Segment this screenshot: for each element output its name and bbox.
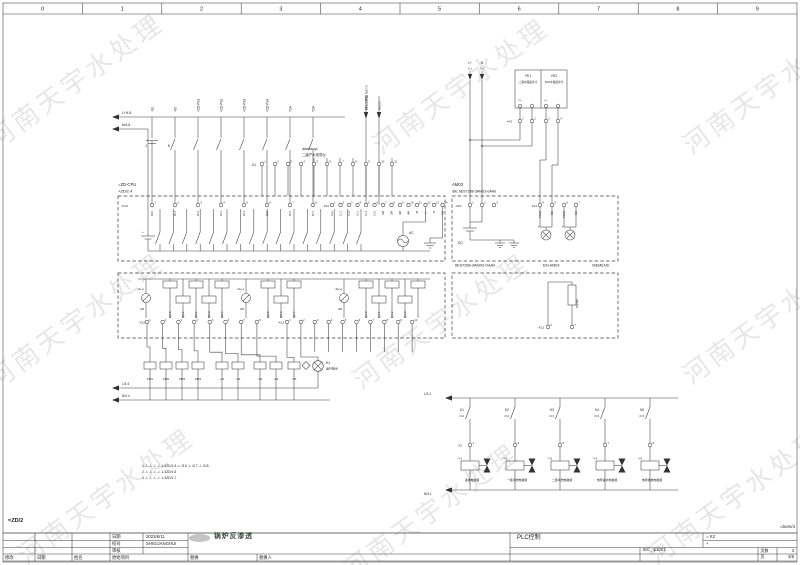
sheet-ref: /3.3 xyxy=(639,414,644,418)
dc-label: DC xyxy=(458,241,463,245)
terminal-number: 4 xyxy=(542,201,544,205)
output-signal: Q1.2 xyxy=(390,311,394,318)
terminal-number: 7 xyxy=(574,323,576,327)
module-tag: AM03 xyxy=(452,182,464,187)
terminal-strip-label: -X12 xyxy=(538,326,545,330)
terminal-number: 11 xyxy=(419,201,422,205)
terminal-number: 5 xyxy=(345,318,347,322)
terminal-number: 2 xyxy=(277,160,279,164)
output-signal: Q0.4 xyxy=(220,311,224,318)
device-label: K xyxy=(168,144,171,148)
output-signal: Q0.3 xyxy=(207,311,211,318)
tb-page-label: 页 xyxy=(761,555,765,559)
terminal-number: 8 xyxy=(315,201,317,205)
tb-modify-label: 修改 xyxy=(5,556,14,560)
device-label: <ZD-PS1 xyxy=(196,99,200,112)
terminal-number: 3 xyxy=(290,160,292,164)
terminal-number: 1 xyxy=(522,117,524,121)
feed-label: 3L(+) xyxy=(335,287,342,291)
terminal-number: 9 xyxy=(400,318,402,322)
terminal-number: 10 xyxy=(411,201,414,205)
device-label: <ZD-PS2 xyxy=(219,99,223,112)
supply-tag: M xyxy=(481,61,484,65)
device-label: -K0 xyxy=(173,107,177,112)
module-caption: EM AM03 xyxy=(543,264,559,268)
cpu-tag: =ZD-CPU xyxy=(118,182,136,187)
io-signal: I0.3 xyxy=(219,211,223,216)
terminal-number: 1 xyxy=(334,201,336,205)
terminal-number: 6 xyxy=(228,318,230,322)
doc-ref-left: =ZD/2 xyxy=(8,519,23,525)
io-signal: I0.4 xyxy=(242,211,246,216)
sheet-ref: /3.2 xyxy=(504,414,509,418)
io-signal: I0.7 xyxy=(311,211,315,216)
terminal-number: 1 xyxy=(154,201,156,205)
terminal-number: 3 xyxy=(200,201,202,205)
terminal-number: 2 xyxy=(484,201,486,205)
rail-label: L/3.1 xyxy=(424,392,431,396)
terminal-number: 7 xyxy=(373,318,375,322)
tb-form: IEC_tp1001 xyxy=(643,548,666,552)
terminal-number: 10 xyxy=(414,318,417,322)
terminal-number: 6 xyxy=(377,201,379,205)
ruler-number: 8 xyxy=(676,7,679,13)
terminal-number: 6 xyxy=(269,201,271,205)
conductivity-tag: diandaoyi xyxy=(302,147,318,151)
valve-tag: -Y3 xyxy=(547,457,552,461)
terminal-number: 7 xyxy=(578,201,580,205)
contactor-row: KM1KM2KM3KM4-K1-K2-K3-K4-K5H1运行指示L/4.4N/… xyxy=(112,345,412,403)
feed-label: 2M xyxy=(240,307,245,311)
plc-cpu-module: =ZD-CPU+ZD/2.4-X101I0.02I0.13I0.24I0.35I… xyxy=(118,182,448,261)
tb-name-label: 姓名 xyxy=(74,556,83,560)
doc-ref-right: =bom/4 xyxy=(752,525,795,530)
terminal-number: 9 xyxy=(653,441,655,445)
output-signal: Q0.6 xyxy=(279,311,283,318)
device-label: T1A xyxy=(288,105,292,112)
terminal-strip-label: -X13 xyxy=(278,321,285,325)
sheet-ref: /3.3 xyxy=(594,414,599,418)
schematic-canvas: 0123456789L+/4.8M/4.8-S1-K0<ZD-PS1<ZD-PS… xyxy=(0,0,800,565)
ac-label: AC xyxy=(409,231,414,235)
ruler-number: 5 xyxy=(438,7,441,13)
terminal-number: 1 xyxy=(264,160,266,164)
device-label: T2A xyxy=(311,105,315,112)
sheet-ref: /3.2 xyxy=(459,414,464,418)
relay-contact-tag: K1 xyxy=(460,408,464,412)
output-signal: Q0.5 xyxy=(266,311,270,318)
sheet-ref: /3.3 xyxy=(549,414,554,418)
module-caption: SIEMENS xyxy=(592,264,610,268)
tb-mdate-label: 日期 xyxy=(37,556,46,560)
relay-contact-tag: K5 xyxy=(640,408,644,412)
io-signal: 4M xyxy=(407,210,411,215)
io-signal: M xyxy=(415,210,419,213)
relay-contact-tag: K4 xyxy=(595,408,599,412)
rail-label: L/4.4 xyxy=(122,382,129,386)
terminal-strip-label: -X10 xyxy=(455,204,462,208)
valve-desc: 电导进水电磁阀 xyxy=(597,477,617,482)
terminal-number: 9 xyxy=(368,160,370,164)
module-caption: 6ES7288-3AM03-OAA0 xyxy=(455,264,495,268)
terminal-number: 4 xyxy=(560,117,562,121)
rail-label: M/4.8 xyxy=(122,123,130,127)
tb-orig-label: 原始项目 xyxy=(112,556,129,560)
terminal-strip-label: -X12 xyxy=(139,321,146,325)
terminal-number: 4 xyxy=(223,201,225,205)
output-signal: Q1.3 xyxy=(403,311,407,318)
io-signal: 3M xyxy=(398,210,402,215)
valve-desc: 二级冲洗电磁阀 xyxy=(552,477,572,482)
drawing-function: PLC控制 xyxy=(517,535,541,541)
instrument-tag: YE2 xyxy=(551,74,558,78)
terminal-number: 5 xyxy=(316,160,318,164)
io-signal: I1.1 xyxy=(339,211,343,216)
terminal-number: 9 xyxy=(402,201,404,205)
ruler-number: 3 xyxy=(279,7,282,13)
ruler-number: 1 xyxy=(121,7,124,13)
ruler-number: 9 xyxy=(756,7,759,13)
terminal-number: 14 xyxy=(445,201,448,205)
terminal-number: 7 xyxy=(243,318,245,322)
lamp-desc: 运行指示 xyxy=(326,366,338,371)
rail-label: N/4.4 xyxy=(122,394,130,398)
terminal-number: 5 xyxy=(368,201,370,205)
instrument-desc: 二级水箱液位计 xyxy=(519,80,538,84)
terminal-number: 3 xyxy=(518,441,520,445)
io-signal: I1.3 xyxy=(356,211,360,216)
tb-date-label: 日期 xyxy=(112,535,121,539)
lamp-tag: H1 xyxy=(326,361,330,365)
output-signal: Q0.1 xyxy=(181,311,185,318)
ruler-number: 4 xyxy=(359,7,362,13)
output-signal: Q1.1 xyxy=(377,311,381,318)
output-signal: Q0.7 xyxy=(292,311,296,318)
device-label: <ZD-PS4 xyxy=(265,99,269,112)
io-signal: N xyxy=(432,211,436,213)
io-signal: I0.1 xyxy=(173,211,177,216)
terminal-number: 4 xyxy=(331,318,333,322)
valve-tag: -Y4 xyxy=(592,457,597,461)
terminal-number: 11 xyxy=(394,160,397,164)
terminal-number: 4 xyxy=(303,160,305,164)
terminal-strip-label: -X10 xyxy=(121,204,128,208)
io-signal: I0.2 xyxy=(196,211,200,216)
output-signal: Q0.0 xyxy=(168,311,172,318)
terminal-number: 7 xyxy=(608,441,610,445)
terminal-number: 5 xyxy=(212,318,214,322)
sheet-ref-label: 网头交换器 NO/T3 xyxy=(364,85,369,110)
io-signal: 2M xyxy=(390,210,394,215)
sheet-ref: 3.1 xyxy=(480,67,484,71)
tb-audit-label: 审核 xyxy=(112,549,121,553)
valve-desc: 电导排放电磁阀 xyxy=(642,477,662,482)
terminal-number: 2 xyxy=(343,201,345,205)
output-signal: PQW0 xyxy=(575,299,579,308)
terminal-number: 13 xyxy=(436,201,439,205)
relay-contact-tag: K3 xyxy=(550,408,554,412)
feed-label: 3M xyxy=(338,307,343,311)
polarity-sign: L+ xyxy=(545,99,548,102)
terminal-number: 8 xyxy=(394,201,396,205)
relay-contact-tag: K2 xyxy=(505,408,509,412)
output-module: 1L(+)1M2L(+)2M3L(+)3MQ0.0Q0.1Q0.2Q0.3Q0.… xyxy=(118,273,445,345)
io-signal: I1.4 xyxy=(364,211,368,216)
terminal-number: 2 xyxy=(303,318,305,322)
ruler-number: 2 xyxy=(200,7,203,13)
plus-sign: + xyxy=(538,225,540,229)
polarity-sign: - xyxy=(558,99,559,102)
terminal-number: 3 xyxy=(317,318,319,322)
valve-tag: -Y1 xyxy=(457,457,462,461)
terminal-number: 2 xyxy=(165,318,167,322)
terminal-number: 8 xyxy=(259,318,261,322)
tb-check-label: 校对 xyxy=(112,542,121,546)
terminal-number: 3 xyxy=(496,201,498,205)
io-signal: 1M xyxy=(381,210,385,215)
device-label: <ZD-PS3 xyxy=(242,99,246,112)
terminal-number: 7 xyxy=(385,201,387,205)
terminal-number: 1 xyxy=(149,318,151,322)
plus-sign: + xyxy=(562,225,564,229)
instrument-tag: YE1 xyxy=(525,74,532,78)
tb-replace-label: 替换 xyxy=(190,556,199,560)
module-model: SIE 6ES7288-3AM03-0AA0 xyxy=(452,190,496,194)
supply-tag: L+ xyxy=(468,61,472,65)
terminal-number: 1 xyxy=(289,318,291,322)
terminal-number: 6 xyxy=(359,318,361,322)
output-signal: Q1.0 xyxy=(364,311,368,318)
am03-analog-module: AM03SIE 6ES7288-3AM03-0AA0-X10123-X114PI… xyxy=(452,182,618,268)
terminal-strip-label: -X2 xyxy=(457,443,462,447)
terminal-number: 8 xyxy=(387,318,389,322)
tb-date-value: 2023/6/11 xyxy=(146,535,165,539)
tb-check-value: SHIGUANGHUI xyxy=(146,542,176,546)
terminal-strip-label: -X11 xyxy=(323,204,330,208)
rail-label: N/3.1 xyxy=(424,492,432,496)
terminal-number: 1 xyxy=(473,441,475,445)
terminal-number: 6 xyxy=(566,201,568,205)
io-signal: I1.5 xyxy=(373,211,377,216)
valve-tag: -Y2 xyxy=(502,457,507,461)
xref-note: 1 -/- -/- -/- -/- 1.4ZD/1.5 -/- /3.6 -/-… xyxy=(142,464,209,468)
terminal-strip-label: -X11 xyxy=(531,204,537,208)
sheet-ref-label: NO/Z3 xyxy=(378,101,382,110)
terminal-number: 3 xyxy=(548,117,550,121)
device-label: -S1 xyxy=(150,107,154,112)
tb-plus: + xyxy=(706,542,709,546)
terminal-number: 6 xyxy=(329,160,331,164)
ruler-number: 7 xyxy=(597,7,600,13)
feed-label: 1L(+) xyxy=(137,287,144,291)
tb-replaceby-label: 替换人 xyxy=(259,556,272,560)
analog-output-section: 67-X12PQW0 xyxy=(452,273,618,338)
tb-page-value: 3/5 xyxy=(779,555,794,559)
company-logo xyxy=(189,534,210,542)
output-signal: Q0.2 xyxy=(194,311,198,318)
input-field-wiring: L+/4.8M/4.8-S1-K0<ZD-PS1<ZD-PS2<ZD-PS3<Z… xyxy=(112,85,398,236)
terminal-number: 8 xyxy=(355,160,357,164)
xref-note: 3 -/- -/- -/- -/- 1.4ZD/1.7 xyxy=(142,476,176,480)
terminal-number: 4 xyxy=(360,201,362,205)
valve-tag: -Y5 xyxy=(637,457,642,461)
io-signal: I0.6 xyxy=(288,211,292,216)
valve-desc: 一级冲洗电磁阀 xyxy=(507,477,527,482)
xref-note: 2 -/- -/- -/- -/- 1.4ZD/1.6 xyxy=(142,470,176,474)
valve-desc: 进水电磁阀 xyxy=(465,477,480,482)
terminal-number: 12 xyxy=(428,201,431,205)
polarity-sign: L+ xyxy=(519,99,522,102)
polarity-sign: - xyxy=(532,99,533,102)
solenoid-ladder: L/3.1N/3.1-X2K1/3.21-Y1进水电磁阀K2/3.23-Y2一级… xyxy=(424,392,678,496)
terminal-strip-label: -X1 xyxy=(251,163,256,167)
terminal-number: 6 xyxy=(550,323,552,327)
device-label: J xyxy=(145,144,147,148)
conductivity-desc: 二级产水电导仪 xyxy=(302,152,326,157)
feed-label: 2L(+) xyxy=(237,287,244,291)
tb-pages-value: 3 xyxy=(779,549,794,553)
tb-plant: = K2 xyxy=(706,535,715,539)
ruler-number: 6 xyxy=(518,7,521,13)
level-instruments: L+3.1M3.1YE1YE2二级水箱液位计RO1水箱液位计L+1-2L+3-4… xyxy=(468,61,567,203)
sheet-frame: 0123456789 xyxy=(3,3,797,562)
contact-xref-notes: 1 -/- -/- -/- -/- 1.4ZD/1.5 -/- /3.6 -/-… xyxy=(142,464,209,480)
terminal-number: 5 xyxy=(554,201,556,205)
terminal-strip-label: =X3 xyxy=(507,120,513,124)
terminal-number: 2 xyxy=(177,201,179,205)
terminal-number: 10 xyxy=(381,160,385,164)
terminal-number: 1 xyxy=(472,201,474,205)
terminal-number: 5 xyxy=(246,201,248,205)
cpu-loc: +ZD/2.4 xyxy=(118,189,133,194)
tb-pages-label: 页数 xyxy=(761,549,769,553)
rail-label: L+/4.8 xyxy=(122,111,131,115)
io-signal: I1.0 xyxy=(330,211,334,216)
drawing-page: 河南天宇水处理 河南天宇水处理 河南天宇水处理 河南天宇水处理 河南天宇水处理 … xyxy=(0,0,800,565)
io-signal: I0.0 xyxy=(150,211,154,216)
plus-sign: + xyxy=(142,230,144,234)
feed-label: 1M xyxy=(140,307,145,311)
terminal-number: 2 xyxy=(534,117,536,121)
drawing-title: 锅炉反渗透 xyxy=(214,534,253,541)
sheet-ref: 3.1 xyxy=(468,67,472,71)
terminal-number: 5 xyxy=(563,441,565,445)
terminal-number: 7 xyxy=(292,201,294,205)
instrument-desc: RO1水箱液位计 xyxy=(545,80,564,84)
ruler-number: 0 xyxy=(41,7,44,13)
terminal-number: 7 xyxy=(342,160,344,164)
terminal-number: 3 xyxy=(351,201,353,205)
